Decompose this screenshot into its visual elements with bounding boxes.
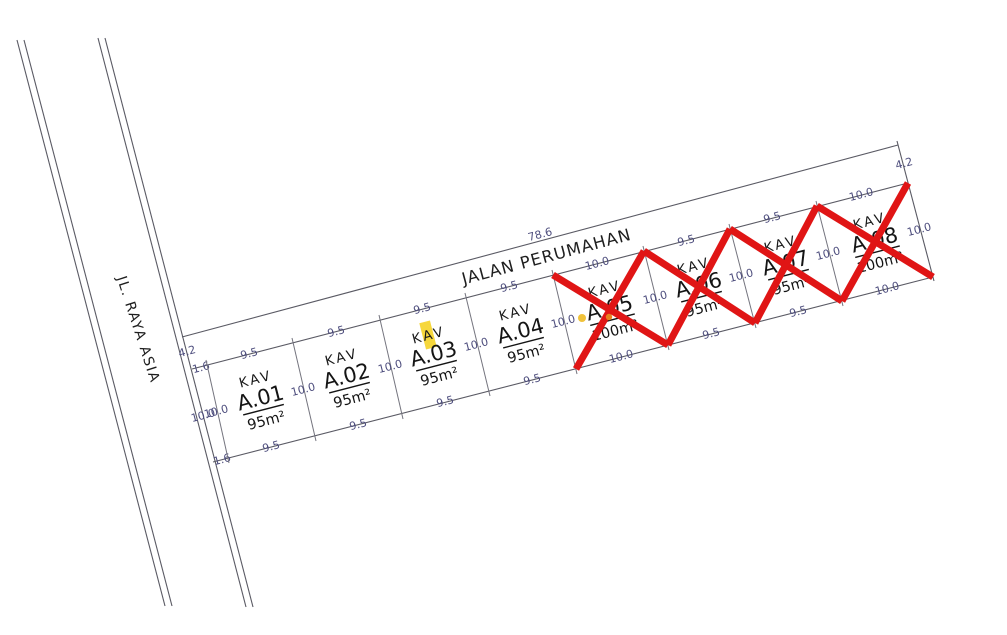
main-road-label: JL. RAYA ASIA [113,273,163,385]
dim-front-road-total-length: 78.6 [527,225,554,244]
site-plan-drawing: JL. RAYA ASIA JALAN PERUMAHAN 78.6 4.2 4… [0,0,1007,635]
main-road-left-edge-inner [24,40,172,606]
main-road-right-edge-inner [98,38,246,607]
marker-dot-orange [606,314,612,320]
site-plan-canvas[interactable]: JL. RAYA ASIA JALAN PERUMAHAN 78.6 4.2 4… [0,0,1007,635]
main-road: JL. RAYA ASIA [17,38,253,607]
dim-road-width-right: 4.2 [894,155,914,172]
marker-dot-yellow [578,314,586,322]
dim-road-width-left: 4.2 [177,343,197,360]
